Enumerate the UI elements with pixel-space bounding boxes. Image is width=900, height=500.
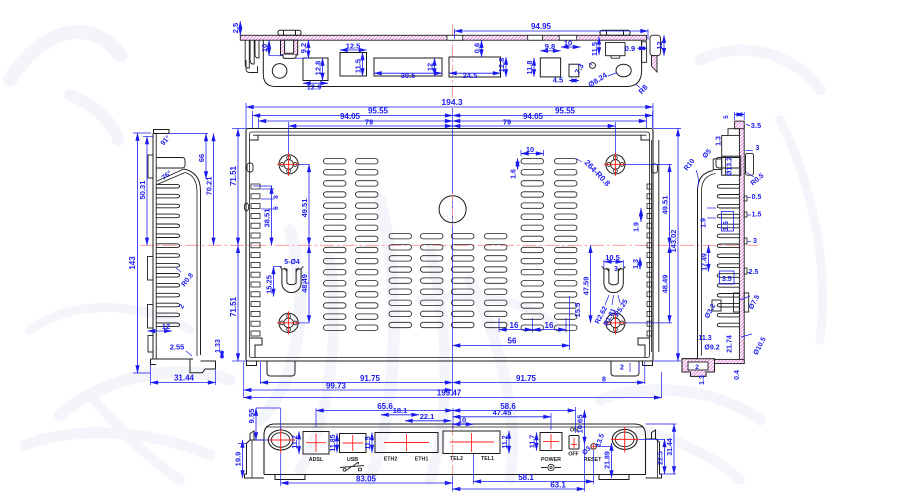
svg-text:5-Ø4: 5-Ø4 [284,259,300,266]
svg-text:POWER: POWER [541,457,561,463]
svg-text:1.9: 1.9 [634,222,641,232]
svg-text:47.59: 47.59 [581,277,590,296]
svg-text:2: 2 [620,365,624,372]
svg-text:48.49: 48.49 [300,274,309,293]
svg-text:2.55: 2.55 [170,343,185,352]
svg-text:49.51: 49.51 [660,196,669,215]
svg-text:194.3: 194.3 [441,97,463,107]
svg-text:95.55: 95.55 [368,107,389,116]
svg-text:79: 79 [503,118,511,127]
svg-text:12: 12 [425,63,434,71]
svg-text:199.47: 199.47 [437,389,462,398]
svg-text:11.7: 11.7 [529,435,536,448]
svg-text:58.6: 58.6 [500,402,516,411]
svg-text:16: 16 [510,321,519,330]
svg-text:3: 3 [614,266,618,273]
svg-text:143.02: 143.02 [669,230,678,253]
svg-text:10: 10 [564,38,572,47]
svg-text:95.55: 95.55 [555,107,576,116]
svg-text:94.05: 94.05 [523,112,544,121]
svg-text:22.1: 22.1 [420,412,435,421]
svg-text:83.05: 83.05 [356,474,377,483]
svg-text:2.5: 2.5 [231,23,240,33]
svg-text:5: 5 [723,115,730,119]
svg-text:48.49: 48.49 [660,275,669,294]
svg-text:10: 10 [526,145,534,154]
svg-text:2.5: 2.5 [749,269,759,276]
svg-text:65.6: 65.6 [377,402,393,411]
svg-text:31.44: 31.44 [667,438,674,456]
svg-text:3.5: 3.5 [722,276,732,283]
svg-text:OFF: OFF [568,452,579,458]
svg-text:11.5: 11.5 [365,436,372,449]
svg-text:12: 12 [162,322,170,331]
svg-text:1.3: 1.3 [633,259,640,269]
svg-text:2: 2 [695,364,699,371]
svg-text:12: 12 [655,41,664,49]
svg-text:USB: USB [347,457,358,463]
svg-text:24.5: 24.5 [463,71,478,80]
svg-text:1.5: 1.5 [752,212,762,219]
svg-text:38.51: 38.51 [262,209,271,228]
svg-text:10.65: 10.65 [575,415,584,434]
svg-text:12.9: 12.9 [307,83,322,92]
svg-text:15.25: 15.25 [264,275,273,294]
svg-text:3: 3 [756,145,760,152]
svg-text:1.33: 1.33 [215,339,222,353]
svg-text:70.21: 70.21 [204,177,213,196]
svg-text:11.5: 11.5 [353,59,362,73]
svg-text:3: 3 [753,238,757,245]
svg-text:11.85: 11.85 [330,434,337,451]
svg-text:12.8: 12.8 [497,58,506,73]
svg-text:19.9: 19.9 [233,452,242,467]
svg-text:71.51: 71.51 [229,296,238,317]
svg-text:56: 56 [508,337,517,346]
svg-text:10.5: 10.5 [605,253,620,262]
svg-text:0.6: 0.6 [472,43,481,53]
svg-text:0.9: 0.9 [625,44,635,53]
svg-text:21.74: 21.74 [727,335,734,353]
svg-text:30.5: 30.5 [401,71,416,80]
svg-text:1.6: 1.6 [723,221,730,231]
svg-text:11.2: 11.2 [502,435,509,448]
svg-text:94.95: 94.95 [531,22,552,31]
svg-text:ETH2: ETH2 [384,457,398,463]
svg-text:0.4: 0.4 [734,370,741,380]
svg-text:22.5: 22.5 [657,451,664,465]
svg-text:50.31: 50.31 [138,181,147,200]
svg-text:Ø9.2: Ø9.2 [704,345,719,352]
svg-text:91.75: 91.75 [516,374,537,383]
svg-text:9.55: 9.55 [247,409,256,424]
svg-text:99.73: 99.73 [326,381,347,390]
svg-text:TEL2: TEL2 [450,456,463,462]
svg-text:Ø13.2: Ø13.2 [727,157,734,176]
svg-text:11.5: 11.5 [590,42,599,56]
svg-text:ADSL: ADSL [309,457,324,463]
svg-text:8: 8 [273,195,280,199]
svg-text:9.2: 9.2 [299,43,308,53]
svg-text:11.3: 11.3 [698,335,711,342]
svg-text:18.1: 18.1 [393,406,408,415]
svg-text:16: 16 [545,321,554,330]
svg-text:79: 79 [365,118,373,127]
svg-text:58.1: 58.1 [518,473,534,482]
svg-text:6: 6 [273,206,280,210]
svg-text:RESET: RESET [584,457,602,463]
svg-text:1.6: 1.6 [510,169,517,179]
svg-text:91.75: 91.75 [360,374,381,383]
svg-text:10: 10 [260,44,269,52]
svg-text:12.5: 12.5 [346,41,361,50]
svg-text:21.89: 21.89 [604,451,611,469]
svg-text:0.5: 0.5 [752,194,762,201]
svg-text:17.49: 17.49 [701,253,708,271]
svg-text:15.5: 15.5 [573,303,582,318]
svg-text:11.2: 11.2 [292,435,299,448]
svg-text:66: 66 [197,154,206,162]
svg-text:1.9: 1.9 [701,218,708,228]
svg-text:143: 143 [128,256,137,270]
svg-text:1.3: 1.3 [699,375,706,385]
svg-text:4.5: 4.5 [553,76,563,85]
svg-text:31.44: 31.44 [174,374,195,383]
svg-text:TEL1: TEL1 [481,456,494,462]
svg-text:1.3: 1.3 [715,136,722,146]
svg-text:49.51: 49.51 [300,199,309,218]
svg-text:12.8: 12.8 [313,61,322,76]
svg-text:11.8: 11.8 [525,60,534,74]
svg-text:63.1: 63.1 [550,480,566,489]
svg-text:9.8: 9.8 [545,42,555,51]
svg-text:94.05: 94.05 [340,112,361,121]
svg-text:3.5: 3.5 [751,121,761,130]
svg-text:ETH1: ETH1 [415,457,429,463]
svg-text:71.51: 71.51 [229,165,238,186]
